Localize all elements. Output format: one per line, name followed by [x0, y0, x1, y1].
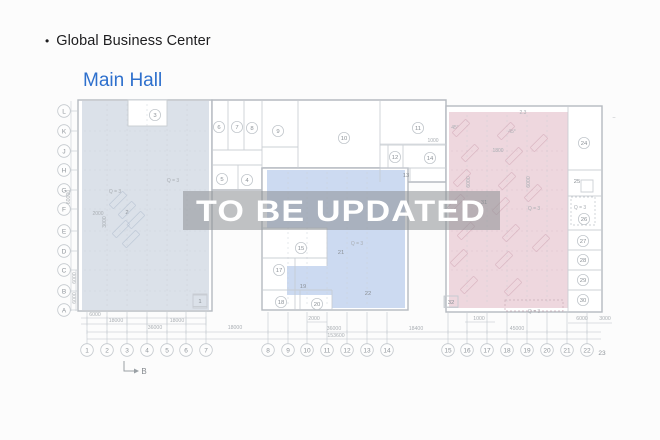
- grid-row-label: A: [62, 307, 67, 314]
- dimension-label-vertical: 3000: [102, 216, 108, 228]
- room-number: 27: [580, 239, 587, 245]
- annotation-label: Q = 3: [528, 206, 541, 212]
- grid-col-label: 2: [105, 347, 109, 354]
- floor-plan: LKJHGFEDCBA12345678910111213141516171819…: [0, 0, 660, 440]
- dimension-label: 18000: [228, 325, 243, 331]
- dimension-label: 3000: [599, 316, 611, 322]
- grid-col-label: 16: [463, 347, 471, 354]
- annotation-label: 1000: [427, 138, 438, 144]
- grid-row-label: F: [62, 206, 66, 213]
- room-number: 32: [448, 300, 455, 306]
- grid-col-label: 1: [85, 347, 89, 354]
- room-number: 26: [581, 217, 588, 223]
- annotation-label: Q = 3: [528, 309, 541, 315]
- grid-row-label: H: [62, 167, 67, 174]
- grid-row-label: L: [62, 108, 66, 115]
- annotation-label: Q = 3: [351, 241, 364, 247]
- room-number: 25: [574, 179, 581, 185]
- grid-row-label: J: [62, 148, 65, 155]
- grid-col-label: 8: [266, 347, 270, 354]
- room-number: 29: [580, 278, 587, 284]
- room-number: 13: [403, 173, 410, 179]
- room-number: 20: [314, 302, 321, 308]
- room-number: 24: [581, 141, 588, 147]
- dimension-label: 2000: [308, 316, 320, 322]
- grid-row-label: B: [62, 288, 66, 295]
- grid-col-label: 3: [125, 347, 129, 354]
- room-number: 19: [300, 284, 307, 290]
- grid-col-label: 5: [165, 347, 169, 354]
- dimension-label-vertical: 6000: [72, 272, 78, 284]
- dimension-label: 6000: [576, 316, 588, 322]
- grid-col-label: 22: [583, 347, 591, 354]
- grid-col-label: 10: [303, 347, 311, 354]
- annotation-label: –: [613, 115, 616, 121]
- grid-col-label: 17: [483, 347, 491, 354]
- grid-col-label: 9: [286, 347, 290, 354]
- room-number: 10: [341, 136, 348, 142]
- grid-col-label: 15: [444, 347, 452, 354]
- room-number: 9: [276, 129, 279, 135]
- dimension-label-vertical: 6000: [526, 176, 532, 188]
- grid-col-label: 23: [598, 350, 606, 357]
- grid-col-label: 7: [204, 347, 208, 354]
- dimension-label: 18000: [170, 318, 185, 324]
- annotation-label: 2.3: [520, 110, 527, 116]
- annotation-label: 1800: [492, 148, 503, 154]
- dimension-label: 18000: [109, 318, 124, 324]
- room-number: 12: [392, 155, 399, 161]
- grid-col-label: 11: [324, 347, 331, 354]
- grid-col-label: 4: [145, 347, 149, 354]
- room-number: 18: [278, 300, 285, 306]
- annotation-label: Q = 3: [574, 205, 587, 211]
- annotation-label: Q = 3: [167, 178, 180, 184]
- grid-row-label: C: [62, 267, 67, 274]
- dimension-label: 153600: [327, 333, 344, 339]
- dimension-label: 1000: [473, 316, 485, 322]
- grid-col-label: 21: [563, 347, 571, 354]
- grid-col-label: 12: [343, 347, 351, 354]
- section-marker-label: B: [141, 367, 146, 376]
- dimension-label-vertical: 6000: [72, 292, 78, 304]
- dimension-label-vertical: 6000: [466, 176, 472, 188]
- room-number: 30: [580, 298, 587, 304]
- left-notch-room: [128, 100, 167, 126]
- grid-row-label: K: [62, 128, 67, 135]
- room-number: 15: [298, 246, 305, 252]
- dimension-label: 36000: [148, 325, 163, 331]
- section-marker: B: [124, 361, 147, 376]
- dimension-label: 6000: [89, 312, 101, 318]
- room-number: 11: [415, 126, 421, 132]
- dimension-label: 18400: [409, 326, 424, 332]
- room-number: 14: [427, 156, 434, 162]
- room-number: 22: [365, 291, 372, 297]
- room-number: 21: [338, 250, 345, 256]
- grid-row-label: D: [62, 248, 67, 255]
- grid-col-label: 14: [383, 347, 391, 354]
- watermark: TO BE UPDATED: [183, 191, 500, 230]
- grid-col-label: 20: [543, 347, 551, 354]
- grid-row-label: E: [62, 228, 67, 235]
- dimension-label: 45000: [510, 326, 525, 332]
- dimension-label: 36000: [327, 326, 342, 332]
- room-number: 17: [276, 268, 283, 274]
- grid-col-label: 13: [363, 347, 371, 354]
- grid-col-label: 18: [503, 347, 511, 354]
- room-number: 7: [235, 125, 238, 131]
- watermark-text: TO BE UPDATED: [196, 195, 486, 228]
- room-number: 1: [198, 299, 201, 305]
- annotation-label: 2000: [92, 211, 103, 217]
- grid-col-label: 6: [184, 347, 188, 354]
- room-number: 28: [580, 258, 587, 264]
- grid-col-label: 19: [523, 347, 531, 354]
